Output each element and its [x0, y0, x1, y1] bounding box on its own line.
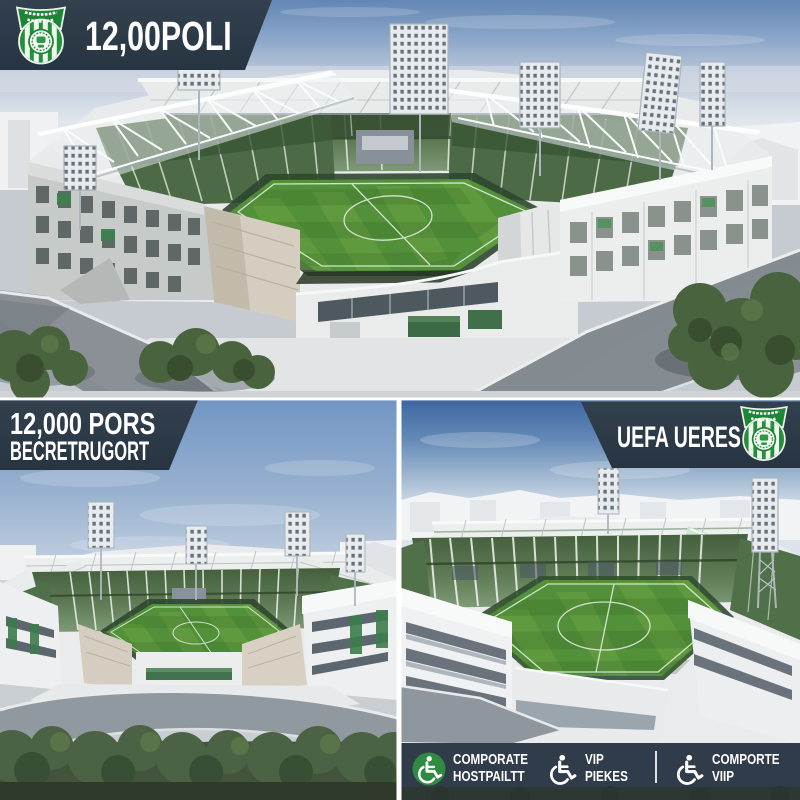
svg-text:VIP: VIP — [585, 751, 604, 768]
svg-text:HOSTPAILTT: HOSTPAILTT — [453, 768, 525, 785]
svg-text:PIEKES: PIEKES — [585, 768, 628, 785]
svg-text:VIIP: VIIP — [712, 768, 734, 785]
svg-text:COMPORATE: COMPORATE — [453, 751, 528, 768]
svg-text:COMPORTE: COMPORTE — [712, 751, 780, 768]
svg-text:12,00POLI: 12,00POLI — [85, 12, 232, 59]
svg-text:BECRETRUGORT: BECRETRUGORT — [10, 436, 149, 466]
svg-text:UEFA UERES: UEFA UERES — [617, 421, 741, 454]
